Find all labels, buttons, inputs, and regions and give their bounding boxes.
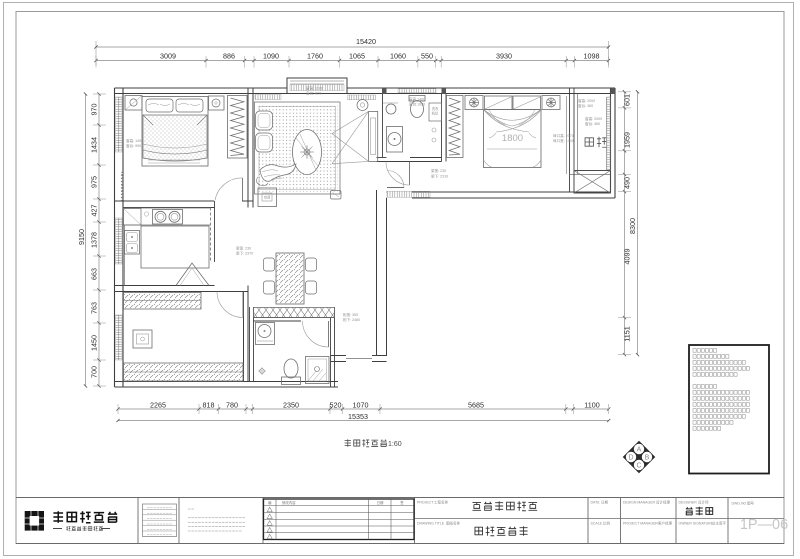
svg-text:窗台: 360: 窗台: 360 [578,103,593,108]
svg-text:4099: 4099 [623,249,632,265]
svg-text:663: 663 [90,268,99,280]
svg-text:15353: 15353 [348,412,368,421]
svg-text:1060: 1060 [390,52,406,61]
svg-text:梁宽: 230: 梁宽: 230 [236,246,251,251]
svg-text:3009: 3009 [160,52,176,61]
svg-text:日期: 日期 [601,500,609,505]
svg-text:柜宽: 350: 柜宽: 350 [343,312,358,317]
svg-text:窗高: 1180: 窗高: 1180 [306,86,323,91]
svg-text:DATE: DATE [591,501,601,505]
svg-text:窗高:1400: 窗高:1400 [409,97,425,102]
svg-text:工程名称: 工程名称 [434,500,448,505]
svg-text:DWG.NO: DWG.NO [732,502,747,506]
svg-text:520: 520 [330,400,342,409]
svg-text:601: 601 [623,94,632,106]
svg-text:日期: 日期 [377,500,384,505]
svg-text:1378: 1378 [90,232,99,248]
svg-text:窗高: 2000: 窗高: 2000 [578,98,595,103]
svg-text:2350: 2350 [283,400,299,409]
svg-text:设计经理: 设计经理 [656,500,670,505]
svg-text:490: 490 [623,177,632,189]
svg-text:设计师: 设计师 [698,500,709,505]
svg-text:梁下: 2370: 梁下: 2370 [236,251,253,256]
svg-text:1065: 1065 [349,52,365,61]
svg-text:比例: 比例 [603,521,611,526]
svg-text:PROJECT MANAGER: PROJECT MANAGER [623,522,658,526]
svg-text:3930: 3930 [496,52,512,61]
svg-text:B: B [645,455,650,462]
svg-text:编: 编 [268,500,272,505]
svg-text:洗衣: 洗衣 [432,106,439,111]
svg-text:垛口宽: 1400: 垛口宽: 1400 [553,138,574,143]
svg-text:垛口高: 2370: 垛口高: 2370 [553,133,574,138]
svg-text:1098: 1098 [584,52,600,61]
svg-text:梁宽: 230: 梁宽: 230 [431,168,446,173]
svg-text:机位: 机位 [432,111,439,116]
svg-text:A: A [637,447,642,454]
svg-text:1090: 1090 [263,52,279,61]
svg-text:梁下: 2310: 梁下: 2310 [431,174,448,179]
svg-text:SCALE: SCALE [591,522,603,526]
svg-text:DRAWING TITLE: DRAWING TITLE [417,522,445,526]
svg-text:1P—06: 1P—06 [740,517,788,533]
svg-text:D: D [628,455,633,462]
svg-text:客户经理: 客户经理 [658,521,672,526]
svg-text:1434: 1434 [90,137,99,153]
svg-text:PROJECT: PROJECT [417,501,434,505]
svg-text:图号: 图号 [747,501,755,506]
svg-text:15420: 15420 [356,37,376,46]
svg-text:空调: 空调 [264,195,270,200]
svg-text:975: 975 [90,176,99,188]
svg-text:2265: 2265 [150,400,166,409]
svg-text:818: 818 [203,400,215,409]
svg-text:DESIGNER: DESIGNER [679,501,698,505]
svg-text:1450: 1450 [90,335,99,351]
svg-text:窗高: 1400: 窗高: 1400 [126,138,143,143]
svg-text:窗台: 990: 窗台: 990 [126,143,141,148]
svg-text:修改内容: 修改内容 [282,500,296,505]
svg-text:DESIGN MANAGER: DESIGN MANAGER [623,501,656,505]
svg-text:柜下: 2460: 柜下: 2460 [343,317,360,322]
svg-text:970: 970 [90,104,99,116]
svg-text:1:60: 1:60 [388,441,402,448]
svg-text:OWNER SIGNATURE: OWNER SIGNATURE [679,522,714,526]
svg-text:业主签字: 业主签字 [712,521,726,526]
svg-text:780: 780 [226,400,238,409]
svg-text:窗台: 620: 窗台: 620 [306,91,321,96]
svg-text:C: C [636,463,641,470]
svg-text:5685: 5685 [468,400,484,409]
svg-text:550: 550 [421,52,433,61]
svg-text:8300: 8300 [628,218,637,234]
svg-text:763: 763 [90,302,99,314]
svg-text:窗台: 360: 窗台: 360 [585,121,600,126]
svg-text:9150: 9150 [77,229,86,245]
svg-text:1100: 1100 [584,400,599,409]
svg-text:1800: 1800 [502,133,523,144]
svg-text:1760: 1760 [307,52,323,61]
svg-text:窗高: 2000: 窗高: 2000 [585,116,602,121]
svg-text:窗台:1020: 窗台:1020 [409,102,425,107]
svg-text:1959: 1959 [623,132,632,148]
svg-text:1070: 1070 [353,400,369,409]
svg-text:700: 700 [90,366,99,378]
svg-text:886: 886 [223,52,235,61]
svg-text:图纸名称: 图纸名称 [446,521,460,526]
svg-text:1151: 1151 [623,326,632,341]
svg-text:427: 427 [90,205,99,217]
